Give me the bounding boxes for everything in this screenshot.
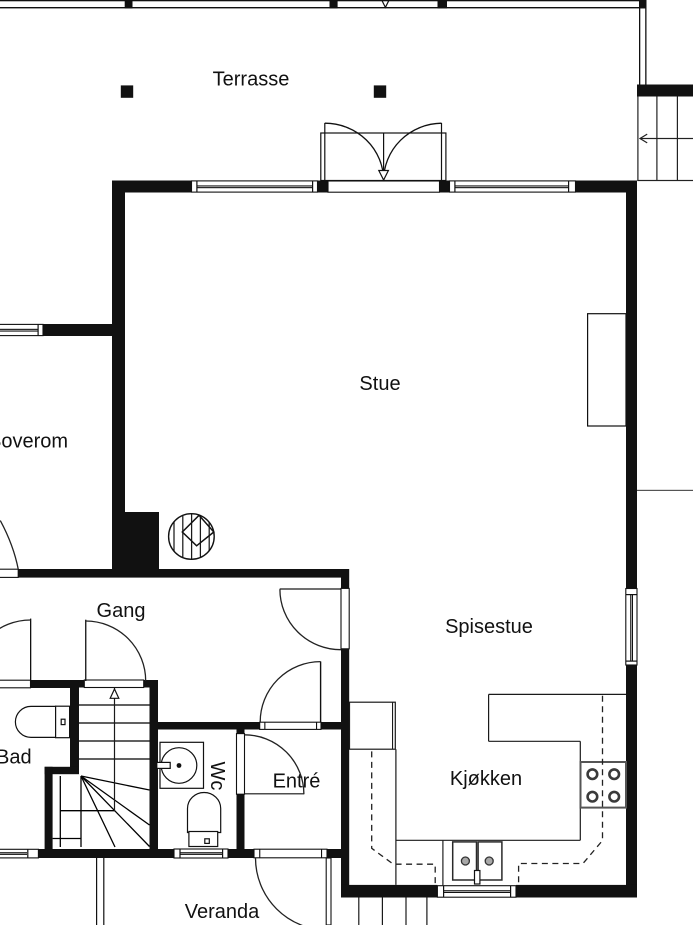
svg-text:Entré: Entré: [273, 771, 321, 793]
svg-text:Soverom: Soverom: [0, 431, 68, 453]
svg-text:Bad: Bad: [0, 747, 32, 769]
svg-text:Stue: Stue: [359, 373, 400, 395]
svg-text:Kjøkken: Kjøkken: [450, 768, 522, 790]
svg-text:Gang: Gang: [97, 600, 146, 622]
svg-text:Veranda: Veranda: [185, 901, 260, 923]
svg-text:Terrasse: Terrasse: [213, 68, 290, 90]
svg-text:Wc: Wc: [206, 762, 228, 791]
svg-text:Spisestue: Spisestue: [445, 616, 533, 638]
